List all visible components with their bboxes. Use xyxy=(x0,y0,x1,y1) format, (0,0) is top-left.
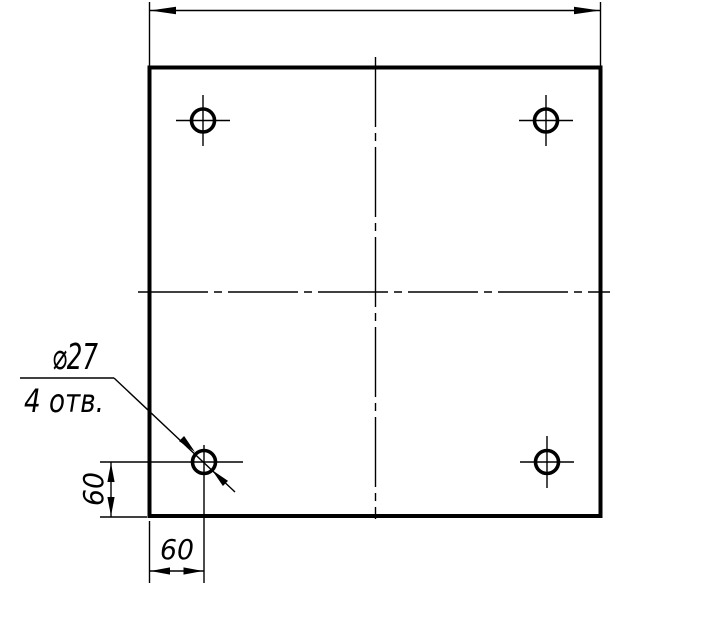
dim-bottom-arrow-right xyxy=(184,567,204,574)
dim-top-arrow-left xyxy=(150,7,176,14)
dim-top-arrow-right xyxy=(574,7,600,14)
label-hole-diameter: ⌀27 xyxy=(52,337,98,378)
leader-arrow-upper xyxy=(179,436,195,452)
label-holes-count: 4 отв. xyxy=(24,382,104,420)
drawing-sheet: ⌀27 4 отв. 60 60 xyxy=(0,0,713,631)
dim-bottom-arrow-left xyxy=(151,567,171,574)
dim-bottom-value: 60 xyxy=(160,533,194,566)
dim-left-value: 60 xyxy=(77,472,110,506)
drawing-canvas: ⌀27 4 отв. 60 60 xyxy=(0,0,713,631)
